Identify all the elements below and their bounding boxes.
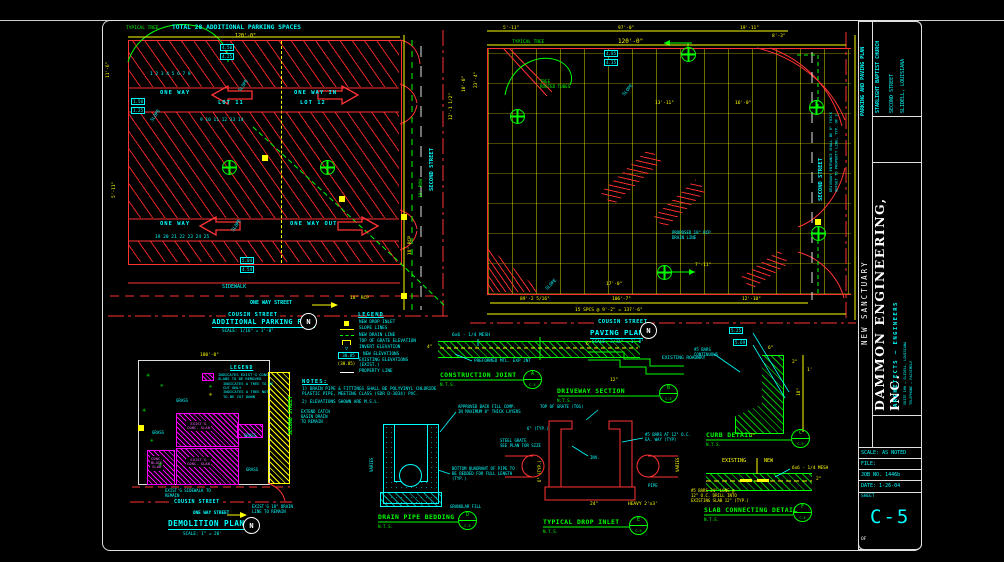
annotation-label: NEW [764,458,773,464]
sw-ysq-icon [338,321,355,326]
annotation-label: 2" [816,477,821,482]
sheet-number: C-5 [870,506,910,528]
slab-connecting-title: SLAB CONNECTING DETAIL [704,506,797,514]
annotation-label: ✳ [160,382,164,389]
legend-item-label: SLOPE LINES [359,327,387,332]
annotation-label: 11'-6" [106,62,111,78]
parking-top-dimension: 120'-0" [235,33,256,39]
annotation-label: EXIST'G SIDEWALK TO REMAIN [165,489,211,499]
stall-numbers-row: 19 20 21 22 23 24 25 [155,235,209,240]
sw-wline-icon [338,372,355,373]
nts-label: N.T.S. [543,529,558,534]
demolition-legend: LEGEND INDICATES EXIST'G CONC. SLABS TO … [202,366,292,399]
annotation-label: 18" RCP [350,296,369,301]
bedding-granular-fill [380,492,442,507]
annotation-label: 4.25 [220,53,234,60]
inlet-circle-symbol [809,100,824,115]
annotation-label: STEEL GRATE SEE PLAN FOR SIZE [500,439,541,449]
slab-label: EXIST'G CONC. SLAB [186,457,211,467]
annotation-label: 12'-1 1/2" [449,93,454,120]
annotation-label: EXIST'G 18" DRAIN LINE TO REMAIN [252,505,293,515]
annotation-label: GRASS [246,468,258,473]
note-item: 2) ELEVATIONS SHOWN ARE M.S.L. [302,400,462,405]
detail-marker: FC-5 [793,503,812,522]
annotation-label: 10'-0" [462,76,467,92]
curb-detail-title: CURB DETAIL [706,431,753,439]
driveway-section-title: DRIVEWAY SECTION [557,387,625,395]
demolition-legend-title: LEGEND [230,366,292,371]
annotation-label: 4.85 [604,50,618,57]
annotation-label: ✳ [150,437,154,444]
annotation-label: 8'-3" [772,34,786,39]
annotation-label: 5'-11" [503,26,519,31]
sheet-label: SHEET [861,494,875,499]
legend-item: PROPERTY LINE [338,369,448,375]
legend-items: NEW DROP INLETSLOPE LINESNEW DRAIN LINET… [338,320,448,375]
annotation-label: #5 BARS AT 12" O.C. EA. WAY (TYP) [645,433,691,443]
dowel-bar [740,479,752,482]
annotation-label: 5.04 [240,257,254,264]
legend-item: ✳INDICATES A TREE NOT TO BE CUT DOWN [202,390,292,399]
construction-joint-title: CONSTRUCTION JOINT [440,371,516,379]
sidewalk-label: SIDEWALK [222,284,246,290]
annotation-label: GRASS [176,399,188,404]
annotation-label: 18" RCP [408,236,413,255]
annotation-label: 6" [586,342,591,347]
annotation-label: TOP OF GRATE (TOG) [540,405,583,410]
annotation-label: 97'-0" [618,26,634,31]
sheet-of-label: OF [861,537,866,542]
detail-marker: DC-5 [458,511,477,530]
titleblock-project-name: NEW SANCTUARY [860,205,869,345]
annotation-label: 6" [768,346,773,351]
annotation-label: 1' [807,368,812,373]
sw-gtree-icon: ✳ [202,383,219,390]
notes-items: 1) DRAIN PIPE & FITTINGS SHALL BE POLYVI… [302,387,462,405]
annotation-label: VARIES [370,458,375,472]
second-street-label: SECOND STREET [818,158,824,201]
legend-item-label: INVERT ELEVATION [359,346,400,351]
demolition-plan-scale: SCALE: 1" = 20' [183,532,222,537]
additional-parking-plan-scale: SCALE: 1/16" = 1'-0" [222,329,274,334]
second-street-label: SECOND STREET [288,396,294,435]
nts-label: N.T.S. [557,398,572,403]
annotation-label: 6" (TYP.) [538,460,543,482]
legend-item-label: INDICATES A TREE NOT TO BE CUT DOWN [223,390,269,399]
nts-label: N.T.S. [378,524,393,529]
parking-stalls-hatch [129,241,399,262]
second-street-note: DRIVEWAY ENTRANCE SHALL BE 6" THICK OFFS… [828,112,839,192]
annotation-label: APPROVED BACK FILL COMP. IN MAXIMUM 8" T… [458,405,521,415]
annotation-label: 5.69 [733,339,747,346]
annotation-label: 12" [610,378,618,383]
lot-11-label: LOT 11 [218,100,244,106]
legend: LEGEND NEW DROP INLETSLOPE LINESNEW DRAI… [338,312,448,375]
inlet-circle-symbol [222,160,237,175]
parking-centerline [281,41,282,263]
north-arrow-icon: N [300,313,317,330]
sw-yline-icon [338,329,355,330]
annotation-label: 6" (TYP.) [527,427,549,432]
one-way-in-label: ONE WAY IN [294,90,337,96]
annotation-label: 4.35 [604,59,618,66]
legend-item: (30.85)EXISTING ELEVATIONS (EXIST.) [338,359,448,369]
detail-marker: EC-5 [629,516,648,535]
annotation-label: 16'-0" [735,101,751,106]
stall-numbers-row: 1 2 3 4 5 6 7 8 [150,72,191,77]
drop-inlet-symbol [401,293,407,299]
north-arrow-icon: N [640,322,657,339]
sw-grate-icon [338,340,355,345]
annotation-label: PREFORMED MTL. EXP JNT [474,359,531,364]
annotation-label: 89'-2 5/16" [520,297,550,302]
demolition-legend-items: INDICATES EXIST'G CONC. SLABS TO BE REMO… [202,373,292,399]
nts-label: N.T.S. [440,382,455,387]
annotation-label: 6x6 - 1/4 MESH [452,333,490,338]
annotation-label: 24" [590,502,598,507]
annotation-label: 180'-0" [200,353,219,358]
drop-inlet-symbol [815,219,821,225]
annotation-label: BOTTOM QUADRANT OF PIPE TO BE BEDDED FOR… [452,467,515,481]
legend-item-label: NEW DRAIN LINE [359,334,395,339]
annotation-label: 18' ROW [419,179,424,198]
inlet-circle-symbol [681,47,696,62]
north-arrow-icon: N [243,517,260,534]
legend-item-label: NEW DROP INLET [359,321,395,326]
inlet-circle-symbol [320,160,335,175]
legend-title: LEGEND [358,312,448,318]
nts-label: N.T.S. [704,517,719,522]
cousin-street-label: COUSIN STREET [172,499,222,505]
annotation-label: 18" [797,388,802,396]
cad-sheet: TOTAL 28 ADDITIONAL PARKING SPACES 120'-… [0,0,1004,562]
note-item: 1) DRAIN PIPE & FITTINGS SHALL BE POLYVI… [302,387,462,398]
titleblock-firm-address: SUITE 100 — SLIDELL, LOUISIANA [903,180,907,405]
sw-paren-icon: (30.85) [338,361,355,366]
second-street-label: SECOND STREET [429,148,435,191]
drop-inlet-symbol [339,196,345,202]
parking-stalls-hatch [129,41,399,87]
sw-ytree-icon: ✳ [202,391,219,398]
legend-item-label: PROPERTY LINE [359,370,393,375]
titleblock-project-type: PARKING AND PAVING PLAN [860,26,866,116]
sw-mhatch-icon [202,373,214,381]
titleblock-client-address: SLIDELL, LOUISIANA [900,25,906,113]
annotation-label: 2" [792,360,797,365]
detail-marker: CC-5 [791,429,810,448]
annotation-label: 13'-11" [655,101,674,106]
parking-plan-heading: TOTAL 28 ADDITIONAL PARKING SPACES [172,24,301,32]
one-way-street-label: ONE WAY STREET [250,300,292,306]
sw-invert-icon: ▽ [338,346,355,352]
annotation-label: 4.50 [220,44,234,51]
titleblock-client: STARLIGHT BAPTIST CHURCH [875,25,881,113]
detail-marker: BC-5 [659,384,678,403]
one-way-label: ONE WAY [160,90,190,96]
annotation-label: 4.54 [240,266,254,273]
annotation-label: 1.50 [131,98,145,105]
annotation-label: 106'-7" [612,297,631,302]
annotation-label: ✳ [146,371,150,379]
titleblock-firm-phone: TELEPHONE — FACSIMILE [909,180,913,405]
annotation-label: GRASS [244,434,256,439]
annotation-label: 5'-11" [112,182,117,198]
notes: NOTES: 1) DRAIN PIPE & FITTINGS SHALL BE… [302,379,462,407]
slab-label: EXIST'G CONC. SLAB [186,421,211,431]
annotation-label: 6x6 - 1/4 MESH [792,466,828,471]
annotation-label: TYPICAL TREE [512,40,545,45]
annotation-label: TREE ROOTED TUBES [540,79,570,89]
annotation-label: 23'-4" [474,72,479,88]
detail-marker: AC-5 [523,370,542,389]
bedding-pipe [399,464,422,487]
legend-item-label: EXISTING ELEVATIONS (EXIST.) [359,359,408,369]
one-way-out-label: ONE WAY OUT [290,221,337,227]
annotation-label: EXISTING [722,458,746,464]
drain-pipe-bedding-title: DRAIN PIPE BEDDING [378,513,454,521]
annotation-label: VARIES [676,458,681,472]
drop-inlet-symbol [262,155,268,161]
lot-12-label: LOT 12 [300,100,326,106]
sw-gdash-icon [338,335,355,336]
dowel-bar [757,479,769,482]
titleblock-firm-subtitle: ARCHITECTS — ENGINEERS [893,175,899,407]
sw-box-icon: 30.85 [338,352,359,359]
drop-inlet-symbol [401,214,407,220]
annotation-label: 12'-10" [742,297,761,302]
stall-numbers-row: 9 10 11 12 13 14 [200,118,243,123]
parking-stalls-hatch [129,112,399,218]
annotation-label: HEAVY 2'x3' [628,502,658,507]
typical-drop-inlet-title: TYPICAL DROP INLET [543,518,619,526]
annotation-label: GRASS [152,431,164,436]
demolition-plan-title: DEMOLITION PLAN [168,519,244,530]
notes-title: NOTES: [302,379,462,385]
annotation-label: ✳ [142,406,146,414]
inlet-circle-symbol [510,109,525,124]
inlet-circle-symbol [657,265,672,280]
inlet-circle-symbol [811,226,826,241]
drop-inlet-symbol [138,425,144,431]
nts-label: N.T.S. [706,442,721,447]
titleblock-date-row: DATE: 1-26-04 [858,480,922,493]
annotation-label: 1.25 [131,107,145,114]
titleblock-client-address: SECOND STREET [889,25,895,113]
paving-plan-scale: SCALE: 3/32" = 1'-0" [592,340,644,345]
paving-top-dimension: 120'-0" [618,38,643,45]
annotation-label: #5 BARS 24" LONG @ 12" O.C. DRILL INTO E… [691,489,749,503]
annotation-label: 5.25 [729,327,743,334]
annotation-label: GRANULAR FILL [450,505,481,510]
annotation-label: EXTEND CATCH BASIN DRAIN TO REMAIN [301,410,330,424]
annotation-label: 15 SPCS @ 9'-2" = 137'-6" [575,308,643,313]
one-way-street-label: ONE WAY STREET [193,511,229,516]
annotation-label: ✳ [158,460,162,468]
annotation-label: PROPOSED 18" RCP DRAIN LINE [672,231,711,241]
annotation-label: 17'-0" [606,282,622,287]
paving-plan-title: PAVING PLAN [590,328,643,339]
titleblock-spare-box [872,415,922,449]
annotation-label: TYPICAL TREE [126,26,159,31]
one-way-label: ONE WAY [160,221,190,227]
annotation-label: #5 BARS CONTINUOUS [694,348,718,358]
annotation-label: INV. [590,456,600,461]
annotation-label: 7'-11" [695,263,711,268]
annotation-label: PIPE [648,484,658,489]
annotation-label: 19'-11" [740,26,759,31]
titleblock-revision-box [872,116,922,164]
